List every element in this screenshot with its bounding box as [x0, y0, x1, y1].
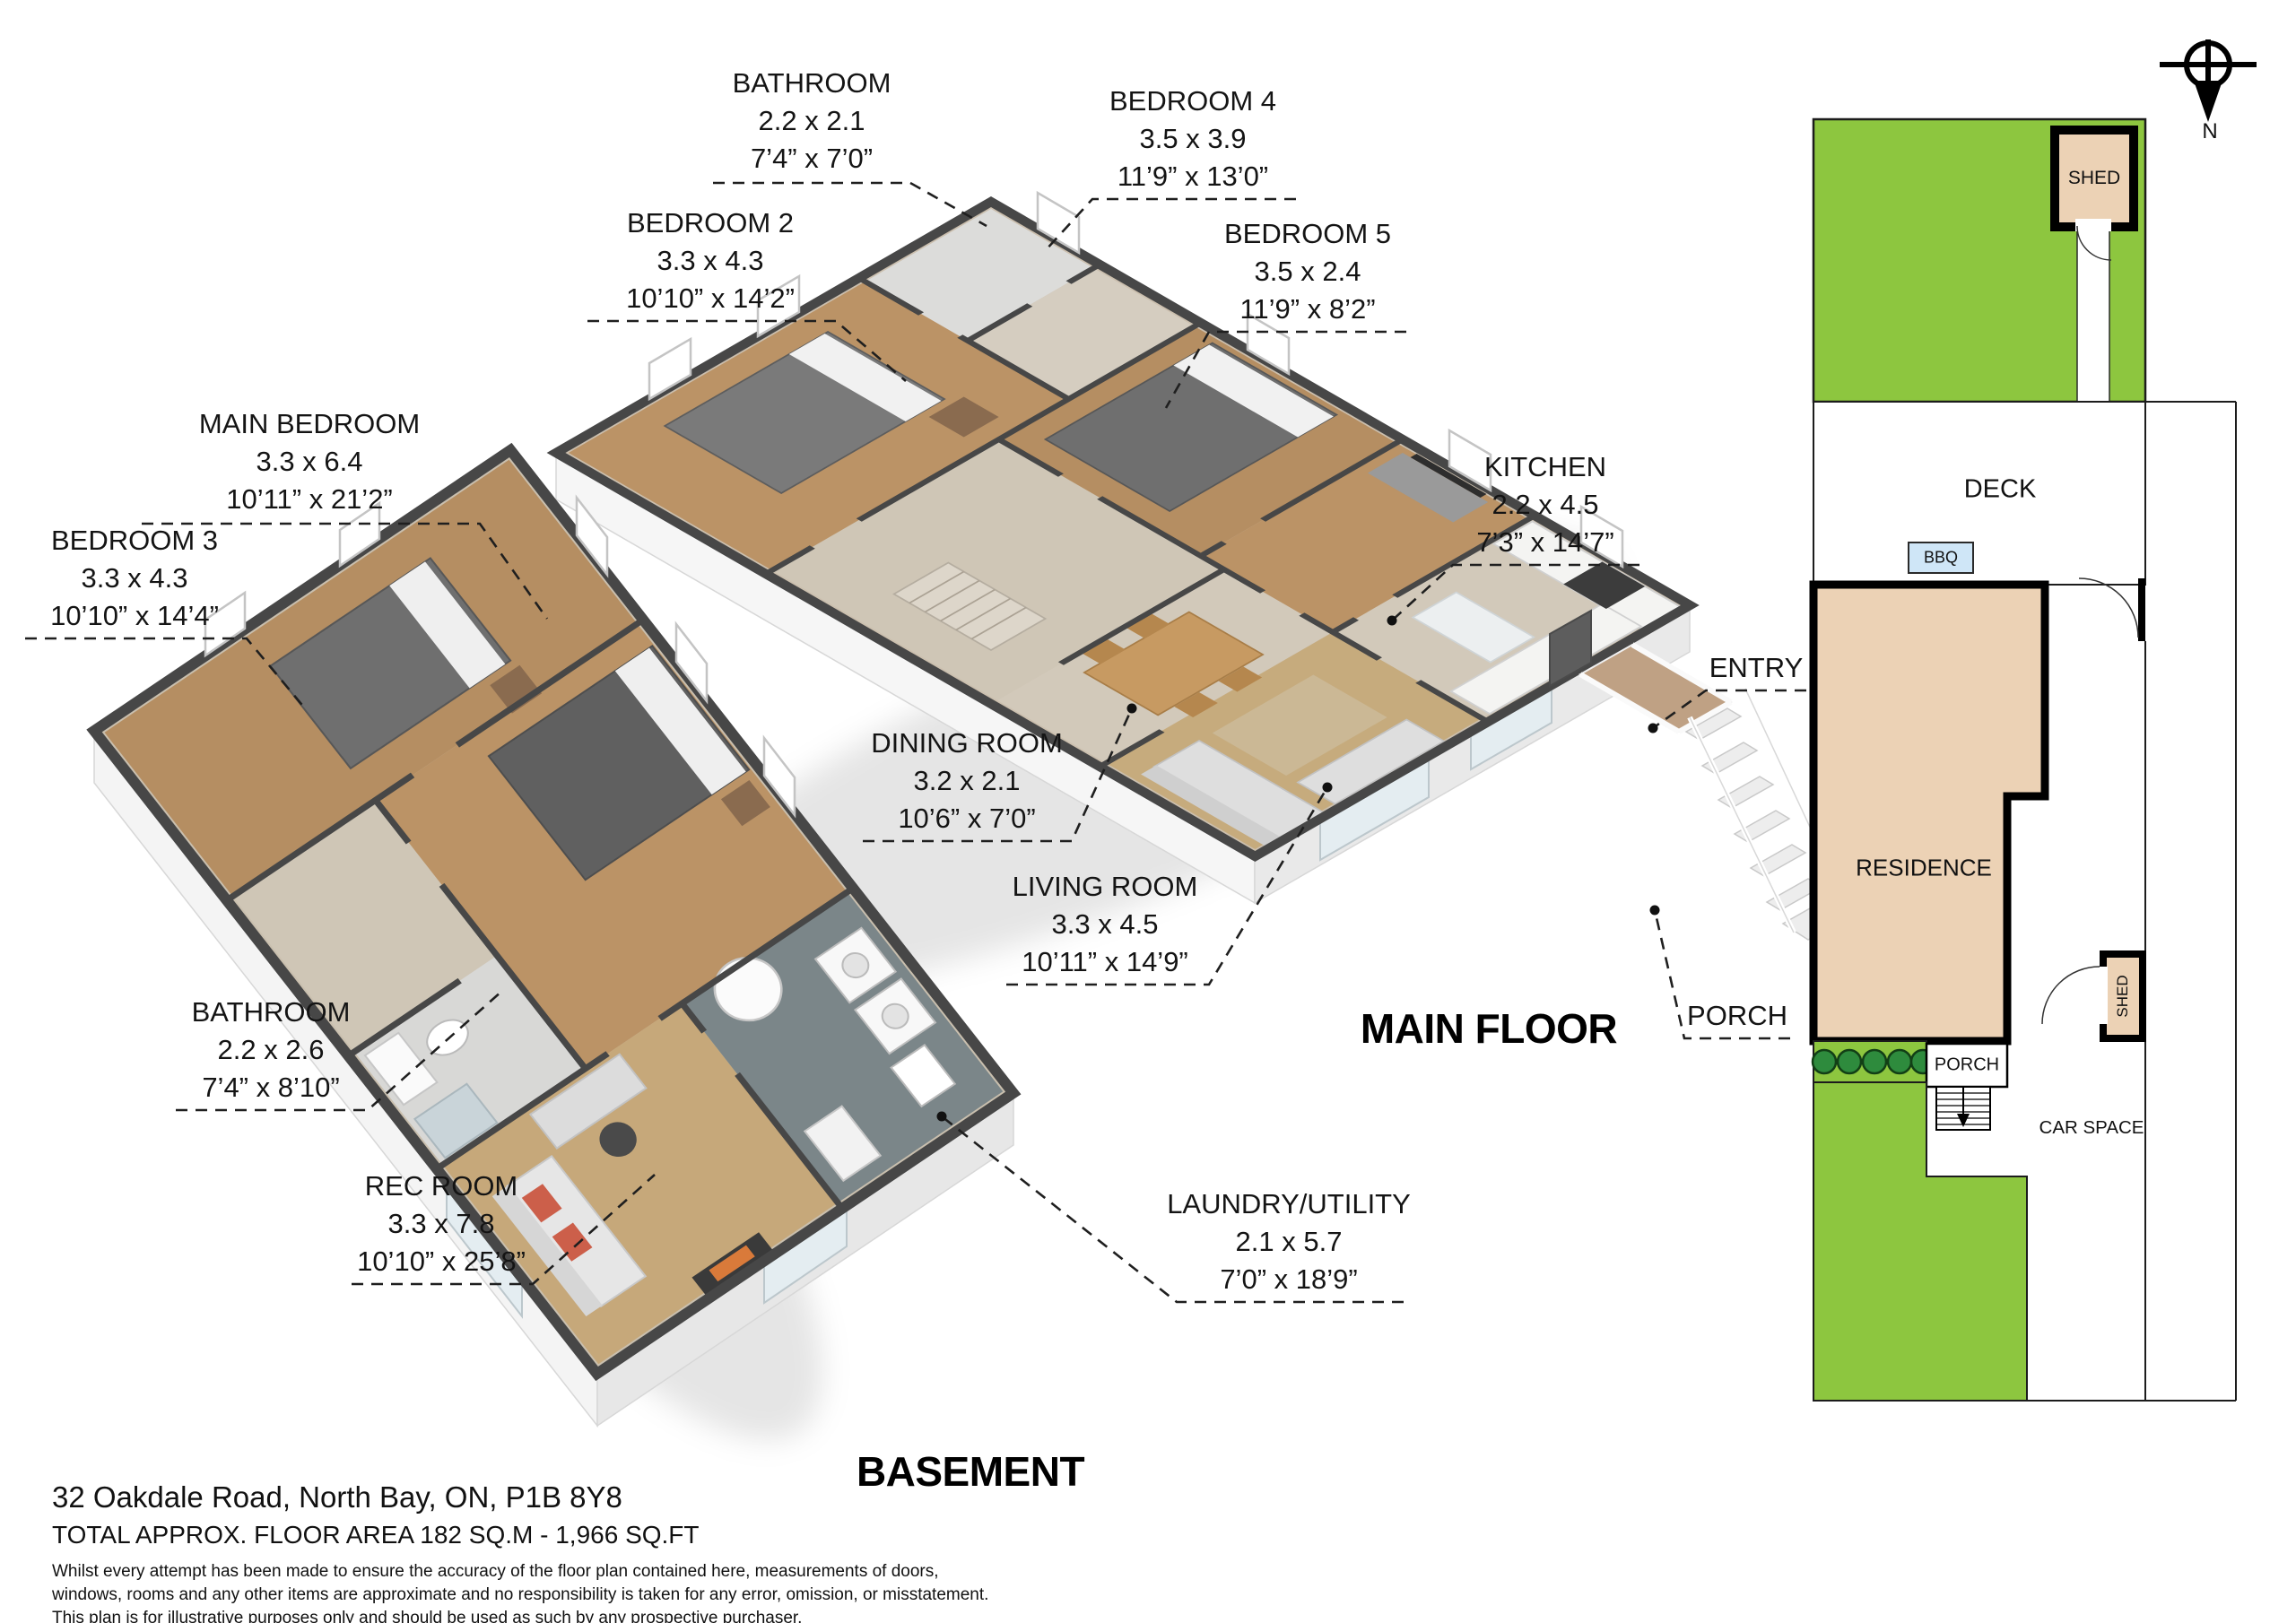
room-dim-imperial: 7’0” x 18’9”: [1167, 1261, 1411, 1298]
room-label-kitchen: KITCHEN 2.2 x 4.5 7’3” x 14’7”: [1476, 448, 1613, 561]
room-name: LIVING ROOM: [1013, 868, 1198, 906]
room-dim-imperial: 10’11” x 14’9”: [1013, 943, 1198, 981]
floor-plan-graphics: [0, 0, 2296, 1623]
disclaimer: Whilst every attempt has been made to en…: [52, 1560, 988, 1623]
room-name: BEDROOM 5: [1224, 215, 1391, 253]
room-dim-imperial: 10’10” x 14’4”: [50, 597, 219, 635]
room-name: BEDROOM 3: [50, 522, 219, 560]
room-dim-imperial: 10’10” x 14’2”: [626, 280, 795, 317]
room-label-rec-room: REC ROOM 3.3 x 7.8 10’10” x 25’8”: [357, 1167, 526, 1280]
total-floor-area: TOTAL APPROX. FLOOR AREA 182 SQ.M - 1,96…: [52, 1517, 988, 1553]
room-name: BEDROOM 2: [626, 204, 795, 242]
room-name: BATHROOM: [192, 994, 351, 1031]
room-name: BATHROOM: [733, 65, 891, 102]
room-dim-imperial: 11’9” x 13’0”: [1109, 158, 1276, 195]
room-label-bedroom2: BEDROOM 2 3.3 x 4.3 10’10” x 14’2”: [626, 204, 795, 317]
room-dim-imperial: 7’4” x 7’0”: [733, 140, 891, 178]
room-label-entry: ENTRY: [1709, 649, 1804, 687]
room-dim-imperial: 7’3” x 14’7”: [1476, 524, 1613, 561]
room-dim-metric: 3.5 x 2.4: [1224, 253, 1391, 291]
room-dim-metric: 3.3 x 7.8: [357, 1205, 526, 1243]
room-name: REC ROOM: [357, 1167, 526, 1205]
site-label-residence: RESIDENCE: [1856, 855, 1992, 882]
disclaimer-line: Whilst every attempt has been made to en…: [52, 1560, 988, 1584]
room-dim-metric: 3.5 x 3.9: [1109, 120, 1276, 158]
room-dim-metric: 3.3 x 4.3: [50, 560, 219, 597]
disclaimer-line: This plan is for illustrative purposes o…: [52, 1607, 988, 1623]
room-label-laundry: LAUNDRY/UTILITY 2.1 x 5.7 7’0” x 18’9”: [1167, 1185, 1411, 1298]
site-label-shed-top: SHED: [2068, 168, 2120, 189]
site-label-porch: PORCH: [1935, 1055, 1999, 1076]
room-label-bathroom-basement: BATHROOM 2.2 x 2.6 7’4” x 8’10”: [192, 994, 351, 1107]
room-dim-metric: 3.3 x 4.5: [1013, 906, 1198, 943]
site-plan: [1813, 119, 2236, 1401]
room-name: ENTRY: [1709, 649, 1804, 687]
room-name: PORCH: [1687, 997, 1787, 1035]
room-name: BEDROOM 4: [1109, 82, 1276, 120]
footer-block: 32 Oakdale Road, North Bay, ON, P1B 8Y8 …: [52, 1478, 988, 1623]
room-dim-metric: 2.2 x 2.6: [192, 1031, 351, 1069]
room-dim-metric: 2.2 x 2.1: [733, 102, 891, 140]
lawn-front: [1813, 1082, 2027, 1401]
site-label-car-space: CAR SPACE: [2039, 1117, 2144, 1139]
room-name: LAUNDRY/UTILITY: [1167, 1185, 1411, 1223]
room-label-porch-main: PORCH: [1687, 997, 1787, 1035]
property-address: 32 Oakdale Road, North Bay, ON, P1B 8Y8: [52, 1478, 988, 1517]
shed-walkway: [2077, 224, 2109, 402]
room-dim-imperial: 10’10” x 25’8”: [357, 1243, 526, 1280]
room-dim-metric: 3.3 x 4.3: [626, 242, 795, 280]
site-label-shed-side: SHED: [2114, 975, 2132, 1017]
room-dim-imperial: 11’9” x 8’2”: [1224, 291, 1391, 328]
room-dim-metric: 2.1 x 5.7: [1167, 1223, 1411, 1261]
room-dim-imperial: 10’6” x 7’0”: [871, 800, 1063, 838]
compass-icon: [2160, 39, 2257, 122]
room-label-living: LIVING ROOM 3.3 x 4.5 10’11” x 14’9”: [1013, 868, 1198, 981]
room-dim-metric: 3.2 x 2.1: [871, 762, 1063, 800]
room-dim-imperial: 7’4” x 8’10”: [192, 1069, 351, 1107]
main-floor-title: MAIN FLOOR: [1361, 1006, 1617, 1051]
room-dim-imperial: 10’11” x 21’2”: [199, 481, 420, 518]
room-label-bedroom5: BEDROOM 5 3.5 x 2.4 11’9” x 8’2”: [1224, 215, 1391, 328]
side-gate: [2079, 578, 2145, 641]
bush-row: [1813, 1041, 1935, 1082]
room-dim-metric: 3.3 x 6.4: [199, 443, 420, 481]
room-label-dining: DINING ROOM 3.2 x 2.1 10’6” x 7’0”: [871, 725, 1063, 838]
residence-footprint: [1813, 585, 2045, 1041]
room-name: DINING ROOM: [871, 725, 1063, 762]
room-name: KITCHEN: [1476, 448, 1613, 486]
site-label-bbq: BBQ: [1924, 549, 1958, 568]
floor-plan-page: BATHROOM 2.2 x 2.1 7’4” x 7’0” BEDROOM 4…: [0, 0, 2296, 1623]
site-stairs: [1936, 1087, 1990, 1130]
room-name: MAIN BEDROOM: [199, 405, 420, 443]
room-label-bedroom4: BEDROOM 4 3.5 x 3.9 11’9” x 13’0”: [1109, 82, 1276, 195]
room-label-bathroom-upper: BATHROOM 2.2 x 2.1 7’4” x 7’0”: [733, 65, 891, 178]
room-label-bedroom3: BEDROOM 3 3.3 x 4.3 10’10” x 14’4”: [50, 522, 219, 635]
room-dim-metric: 2.2 x 4.5: [1476, 486, 1613, 524]
porch-stairs-render: [1580, 645, 1849, 940]
site-label-deck: DECK: [1964, 475, 2037, 505]
compass-north-label: N: [2202, 119, 2217, 144]
room-label-main-bedroom: MAIN BEDROOM 3.3 x 6.4 10’11” x 21’2”: [199, 405, 420, 518]
disclaimer-line: windows, rooms and any other items are a…: [52, 1584, 988, 1607]
